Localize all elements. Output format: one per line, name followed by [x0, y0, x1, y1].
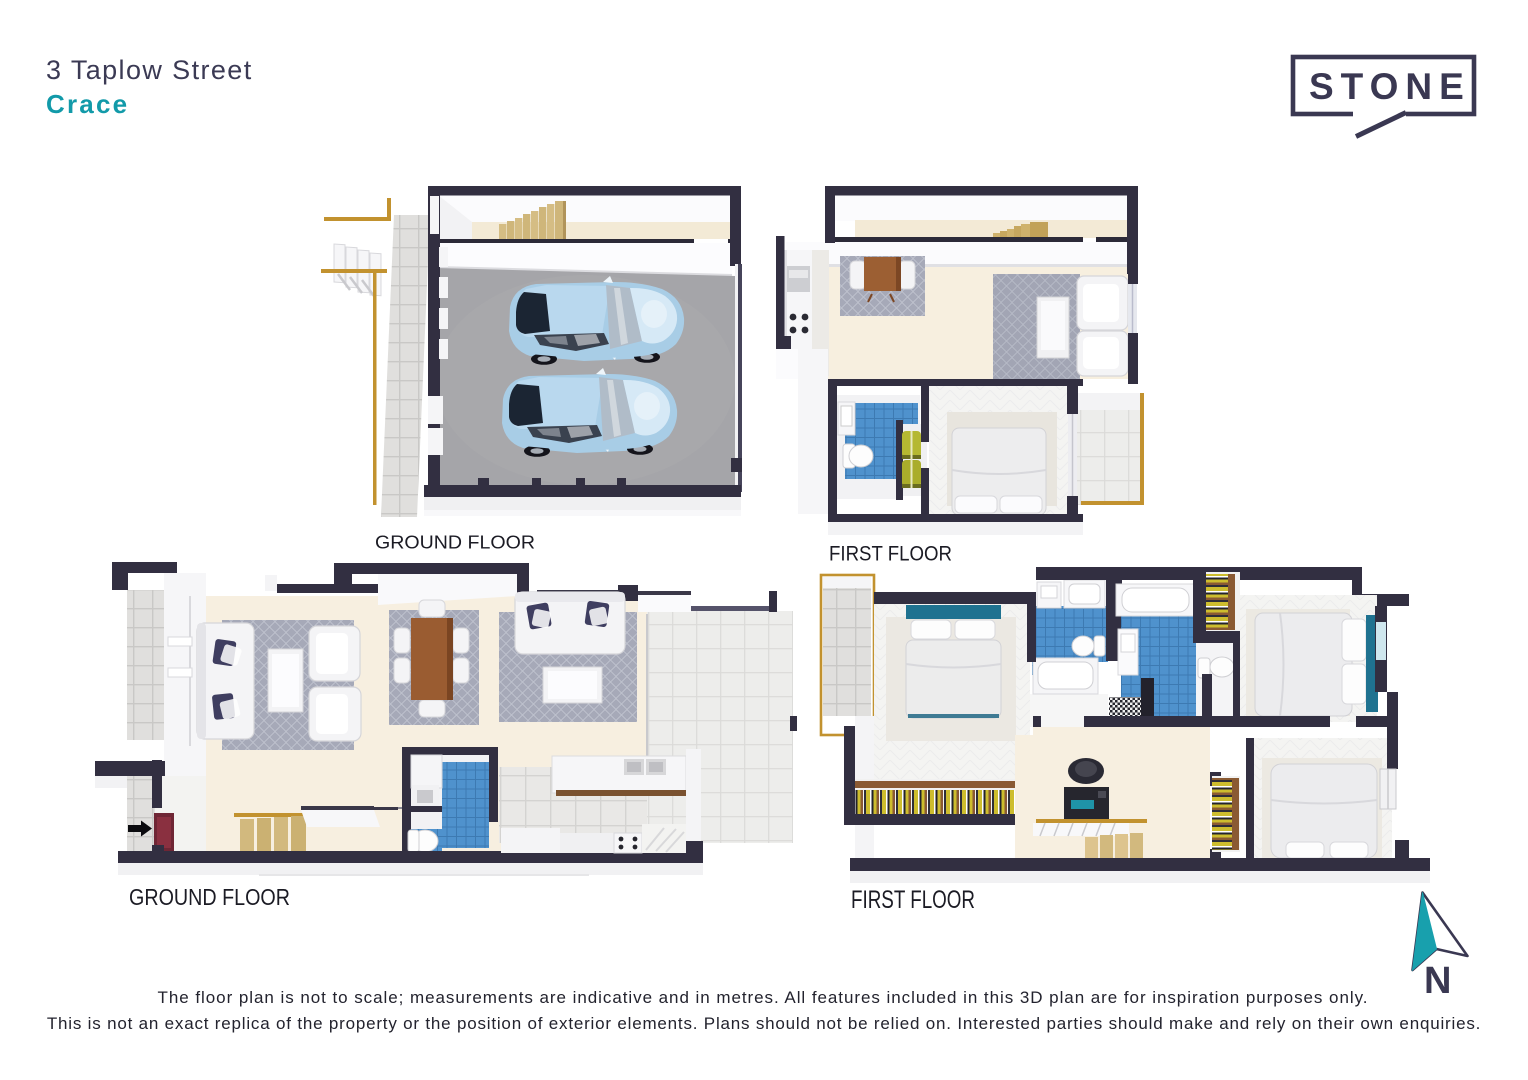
svg-text:The floor plan is not to scale: The floor plan is not to scale; measurem… [158, 988, 1369, 1007]
svg-text:GROUND FLOOR: GROUND FLOOR [129, 884, 290, 910]
svg-text:N: N [1424, 960, 1451, 1002]
svg-text:FIRST FLOOR: FIRST FLOOR [829, 542, 952, 566]
svg-text:3 Taplow Street: 3 Taplow Street [46, 55, 253, 85]
svg-text:This is not an exact replica o: This is not an exact replica of the prop… [47, 1014, 1481, 1033]
svg-text:STONE: STONE [1309, 66, 1471, 107]
svg-text:GROUND FLOOR: GROUND FLOOR [375, 532, 535, 553]
svg-text:Crace: Crace [46, 89, 129, 119]
svg-text:FIRST FLOOR: FIRST FLOOR [851, 886, 975, 914]
